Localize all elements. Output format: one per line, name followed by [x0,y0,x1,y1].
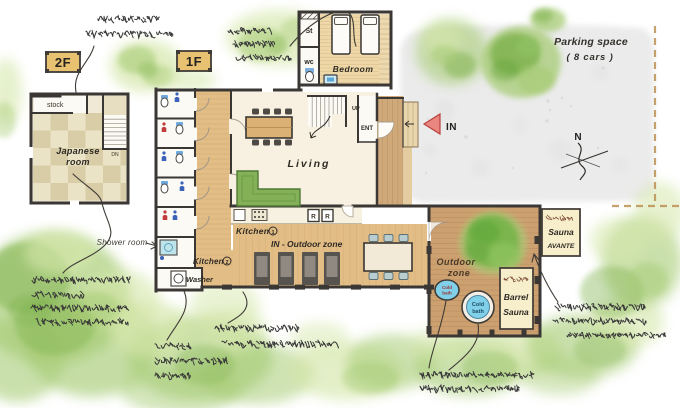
svg-text:Kitchen: Kitchen [236,226,269,236]
svg-text:Kitchen: Kitchen [193,257,224,266]
svg-text:Washer: Washer [186,275,214,284]
svg-text:Cold: Cold [472,302,484,308]
svg-text:N: N [574,132,581,143]
svg-text:2F: 2F [55,55,71,70]
svg-text:R: R [311,214,316,221]
svg-text:IN - Outdoor zone: IN - Outdoor zone [271,239,343,249]
svg-text:room: room [66,157,90,167]
svg-text:Bedroom: Bedroom [333,64,374,74]
svg-text:Barrel: Barrel [504,292,529,302]
svg-text:stock: stock [47,102,64,109]
svg-text:bath: bath [472,309,484,315]
svg-text:AVANTE: AVANTE [547,243,575,250]
svg-text:2: 2 [225,260,228,266]
svg-text:bath: bath [442,291,452,296]
svg-text:IN: IN [446,122,457,133]
svg-text:R: R [325,214,330,221]
svg-text:Japanese: Japanese [56,146,99,156]
svg-text:Sauna: Sauna [503,307,529,317]
svg-text:DN: DN [111,152,119,158]
svg-text:( 8 cars ): ( 8 cars ) [566,52,613,63]
svg-text:wc: wc [303,59,313,66]
svg-text:1F: 1F [186,54,202,69]
svg-text:Cold: Cold [442,285,452,290]
svg-text:Outdoor: Outdoor [437,257,476,267]
svg-text:Living: Living [288,158,331,170]
svg-text:Parking space: Parking space [554,36,628,48]
svg-text:Sauna: Sauna [548,227,574,237]
svg-text:UP: UP [352,106,360,112]
svg-text:zone: zone [447,268,471,278]
svg-text:ENT: ENT [361,126,373,132]
svg-text:1: 1 [271,230,274,236]
